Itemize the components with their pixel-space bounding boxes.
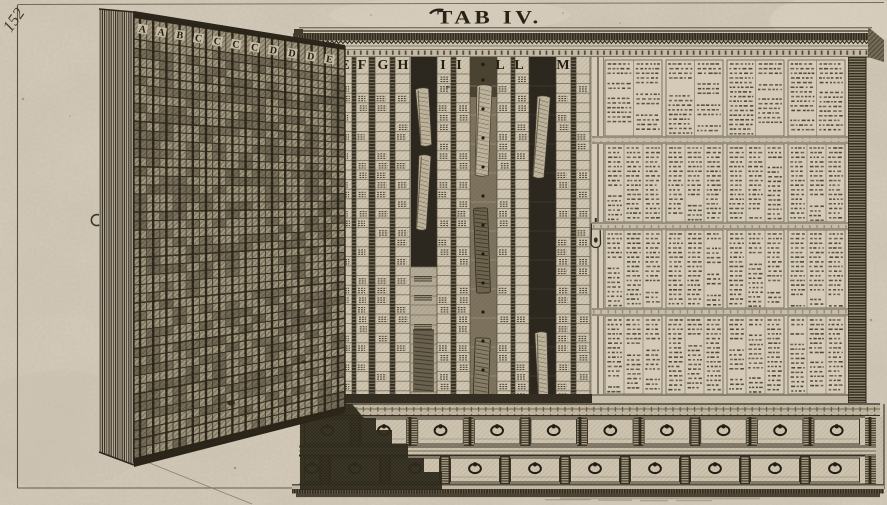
- svg-text:TAB IV.: TAB IV.: [437, 7, 542, 29]
